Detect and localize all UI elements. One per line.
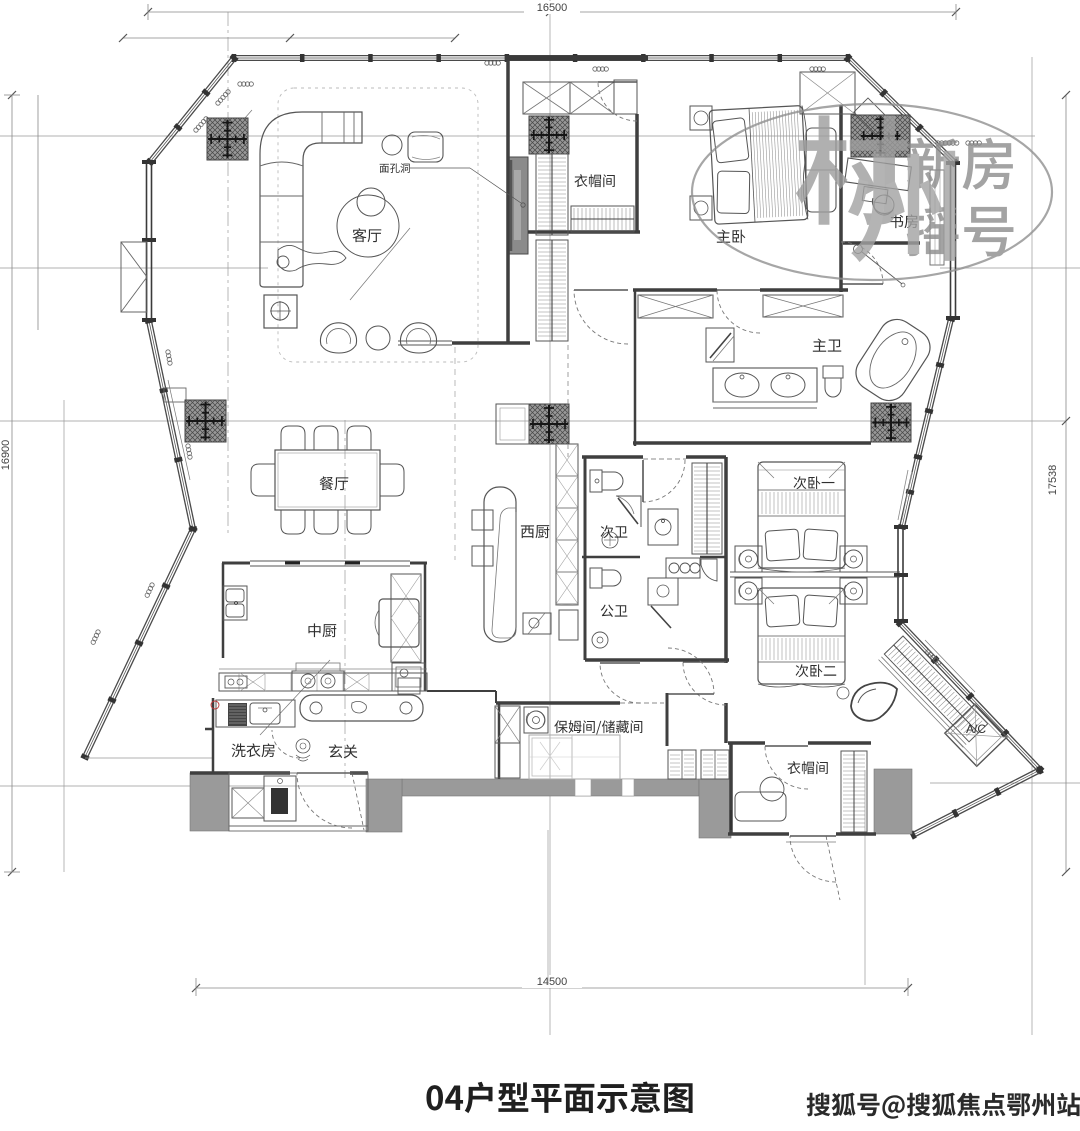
svg-text:16900: 16900 — [0, 440, 12, 471]
svg-text:17538: 17538 — [1047, 465, 1059, 496]
svg-text:A/C: A/C — [966, 722, 986, 736]
svg-text:14500: 14500 — [537, 976, 568, 988]
svg-text:16500: 16500 — [537, 2, 568, 14]
